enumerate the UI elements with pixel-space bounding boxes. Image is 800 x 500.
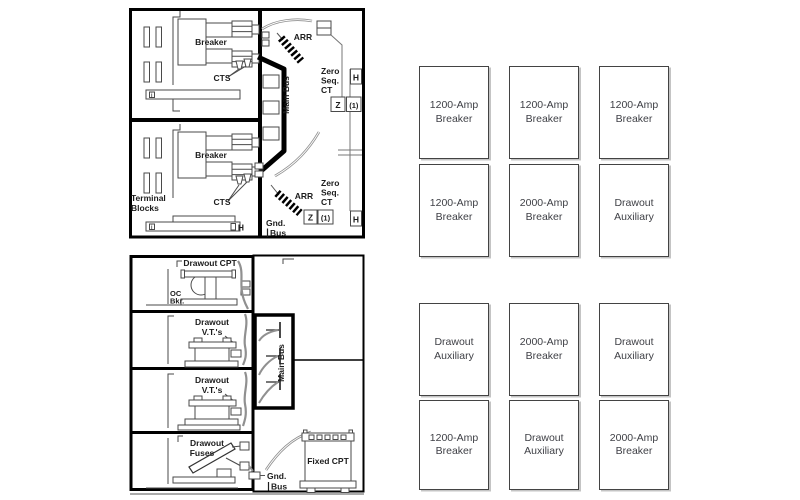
label-fixed-cpt: Fixed CPT (307, 456, 349, 466)
label-zero-upper: Zero (321, 66, 339, 76)
label-drawout-vt1: Drawout (195, 317, 229, 327)
bay-cell: 1200-Amp Breaker (599, 66, 669, 159)
label-ct-upper: CT (321, 85, 333, 95)
elevation-diagram-auxiliary-sections: Drawout CPT OC Bkr. Drawout V.T.'s (128, 252, 368, 495)
bay-cell: Drawout Auxiliary (509, 400, 579, 490)
label-drawout-fuses: Drawout (190, 438, 224, 448)
bay-cell: Drawout Auxiliary (599, 164, 669, 257)
label-gnd-bus-top: Bus (270, 228, 286, 238)
label-breaker-upper: Breaker (195, 37, 227, 47)
bay-cell: 2000-Amp Breaker (599, 400, 669, 490)
label-one-lower: (1) (321, 214, 331, 223)
compartment-drawout-cpt (146, 261, 250, 309)
compartment-upper-breaker (144, 11, 259, 111)
label-one-upper: (1) (349, 101, 359, 110)
label-seq-lower: Seq. (321, 188, 339, 198)
label-drawout-vt2: Drawout (195, 375, 229, 385)
label-seq-upper: Seq. (321, 76, 339, 86)
label-gnd-bottom: Gnd. (267, 471, 286, 481)
label-rail-h: H (238, 223, 244, 233)
label-z-upper: Z (335, 100, 340, 110)
label-h-upper: H (353, 73, 359, 83)
label-zero-lower: Zero (321, 178, 339, 188)
label-bkr: Bkr. (170, 297, 184, 306)
main-bus-box (255, 315, 293, 408)
label-ct-lower: CT (321, 197, 333, 207)
label-vts-2: V.T.'s (202, 385, 223, 395)
bay-cell: 1200-Amp Breaker (419, 400, 489, 490)
elevation-diagram-breaker-sections: Breaker CTS i Breaker CTS Terminal Block… (128, 7, 368, 239)
label-main-bus-top: Main Bus (281, 76, 291, 114)
label-cts-upper: CTS (214, 73, 231, 83)
bay-cell: 2000-Amp Breaker (509, 164, 579, 257)
label-gnd-bus-bottom: Bus (271, 482, 287, 492)
page: Breaker CTS i Breaker CTS Terminal Block… (0, 0, 800, 500)
label-blocks: Blocks (131, 203, 159, 213)
label-z-lower: Z (308, 213, 313, 223)
label-cts-lower: CTS (214, 197, 231, 207)
label-drawout-cpt: Drawout CPT (183, 258, 237, 268)
label-gnd-top: Gnd. (266, 218, 285, 228)
bay-cell: Drawout Auxiliary (419, 303, 489, 396)
label-fuses: Fuses (190, 448, 215, 458)
bay-cell: Drawout Auxiliary (599, 303, 669, 396)
label-breaker-lower: Breaker (195, 150, 227, 160)
label-terminal: Terminal (131, 193, 166, 203)
bay-cell: 1200-Amp Breaker (419, 66, 489, 159)
label-arr-lower: ARR (295, 191, 313, 201)
bay-cell: 2000-Amp Breaker (509, 303, 579, 396)
bay-notch (283, 259, 294, 264)
label-vts-1: V.T.'s (202, 327, 223, 337)
label-h-lower: H (353, 215, 359, 225)
upper-ct-bay (262, 20, 362, 211)
compartment-lower-breaker (144, 124, 259, 231)
label-main-bus-bottom: Main Bus (276, 344, 286, 382)
label-arr-upper: ARR (294, 32, 312, 42)
bay-cell: 1200-Amp Breaker (419, 164, 489, 257)
bay-cell: 1200-Amp Breaker (509, 66, 579, 159)
